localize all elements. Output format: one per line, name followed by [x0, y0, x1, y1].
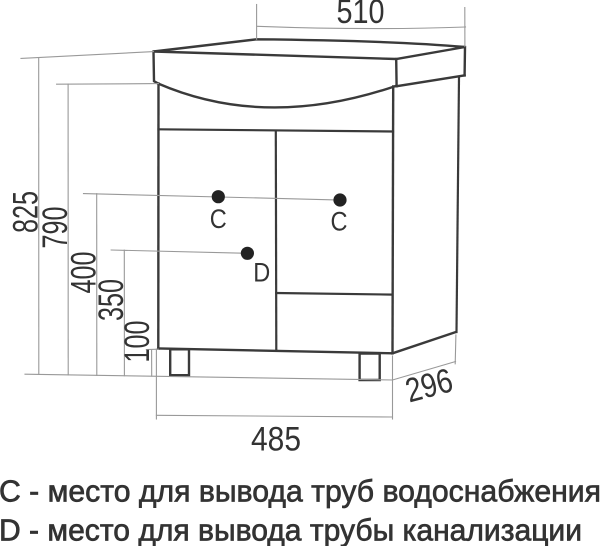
- svg-text:485: 485: [251, 421, 301, 459]
- svg-text:C: C: [331, 207, 348, 237]
- svg-text:D: D: [253, 258, 270, 288]
- svg-text:350: 350: [91, 279, 131, 321]
- svg-text:100: 100: [117, 321, 157, 363]
- svg-text:C - место для вывода труб водо: C - место для вывода труб водоснабжения: [0, 473, 600, 508]
- svg-text:C: C: [210, 204, 227, 234]
- svg-text:D - место для вывода трубы кан: D - место для вывода трубы канализации: [0, 512, 582, 546]
- svg-text:790: 790: [35, 207, 75, 249]
- svg-text:510: 510: [337, 0, 385, 31]
